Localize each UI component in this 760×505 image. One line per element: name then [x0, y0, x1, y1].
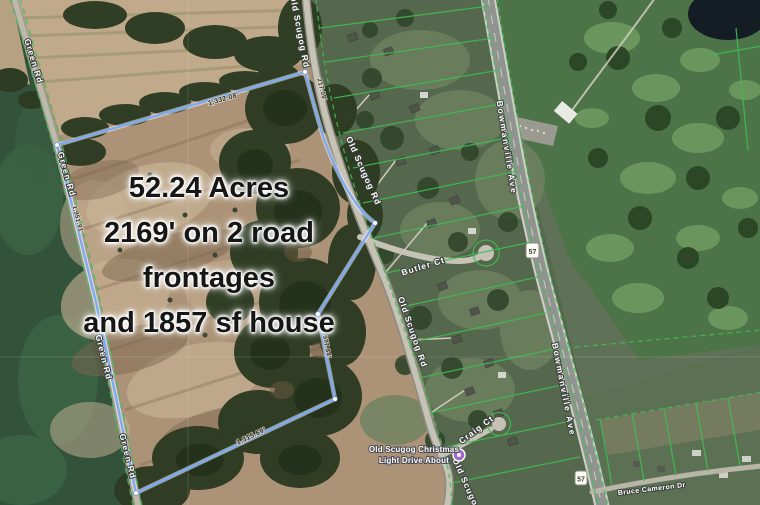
annotation-house: and 1857 sf house: [24, 301, 394, 346]
poi-label-line2: Light Drive About: [379, 456, 449, 465]
satellite-map[interactable]: 1,332.08' 217.09' 977.84' 1,315.69' 1,95…: [0, 0, 760, 505]
highway-57-shield-north: 57: [526, 243, 539, 258]
annotation-acres: 52.24 Acres: [24, 166, 394, 211]
poi-label-line1: Old Scugog Christmas: [369, 445, 460, 454]
annotation-frontage-line2: frontages: [24, 256, 394, 301]
highway-57-shield-south: 57: [575, 471, 587, 485]
highway-57-shield-north-label: 57: [529, 249, 537, 256]
listing-annotation: 52.24 Acres 2169' on 2 road frontages an…: [24, 166, 394, 346]
annotation-frontage-line1: 2169' on 2 road: [24, 211, 394, 256]
highway-57-shield-south-label: 57: [577, 477, 585, 484]
